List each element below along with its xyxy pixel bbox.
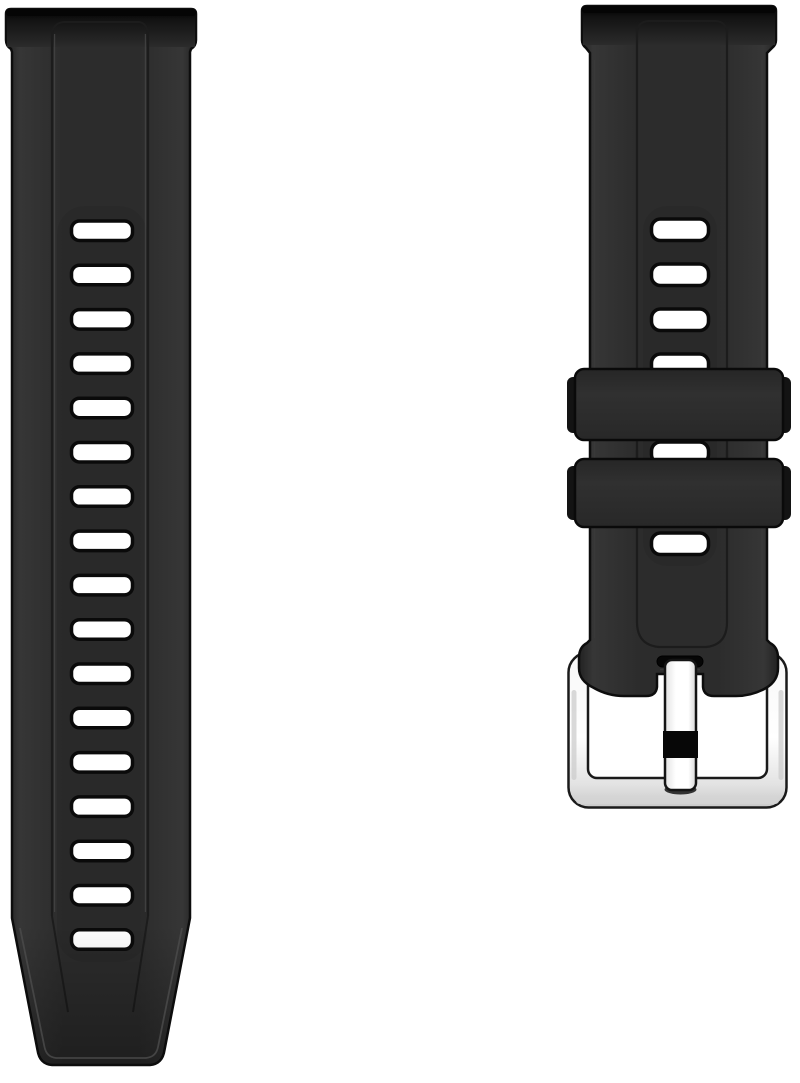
strap-hole <box>72 487 133 507</box>
strap-hole <box>652 264 709 286</box>
strap-hole <box>652 309 709 331</box>
buckle-bottom-bar-shade <box>576 797 779 804</box>
strap-hole <box>652 219 709 241</box>
strap-hole <box>72 354 133 374</box>
strap-hole <box>72 620 133 640</box>
left-spring-bar-edge <box>6 9 196 16</box>
keeper-2-face <box>575 459 783 527</box>
strap-hole <box>72 221 133 241</box>
buckle-post-shade-left <box>572 690 577 780</box>
strap-hole <box>72 310 133 330</box>
keeper-loop-2 <box>567 459 791 527</box>
left-tip-shade <box>13 925 189 1064</box>
tongue-bar <box>665 660 696 790</box>
strap-hole <box>72 797 133 817</box>
watch-band-illustration <box>0 0 800 1083</box>
left-hole-column <box>72 221 133 949</box>
product-photo <box>0 0 800 1083</box>
buckle-post-shade-right <box>779 690 784 780</box>
strap-hole-below-keepers <box>652 533 709 555</box>
strap-hole <box>72 443 133 463</box>
strap-hole <box>72 841 133 861</box>
strap-hole <box>72 265 133 285</box>
right-strap <box>567 6 791 808</box>
strap-hole <box>72 398 133 418</box>
strap-hole <box>72 886 133 906</box>
strap-hole <box>72 753 133 773</box>
right-spring-bar-edge <box>582 6 776 13</box>
strap-hole <box>72 575 133 595</box>
keeper-1-face <box>575 369 783 440</box>
strap-hole <box>72 664 133 684</box>
left-strap <box>6 9 196 1065</box>
keeper-loop-1 <box>567 369 791 440</box>
tongue-black-band <box>663 731 698 758</box>
strap-hole <box>72 531 133 551</box>
buckle-tongue <box>663 660 698 795</box>
strap-hole <box>72 708 133 728</box>
